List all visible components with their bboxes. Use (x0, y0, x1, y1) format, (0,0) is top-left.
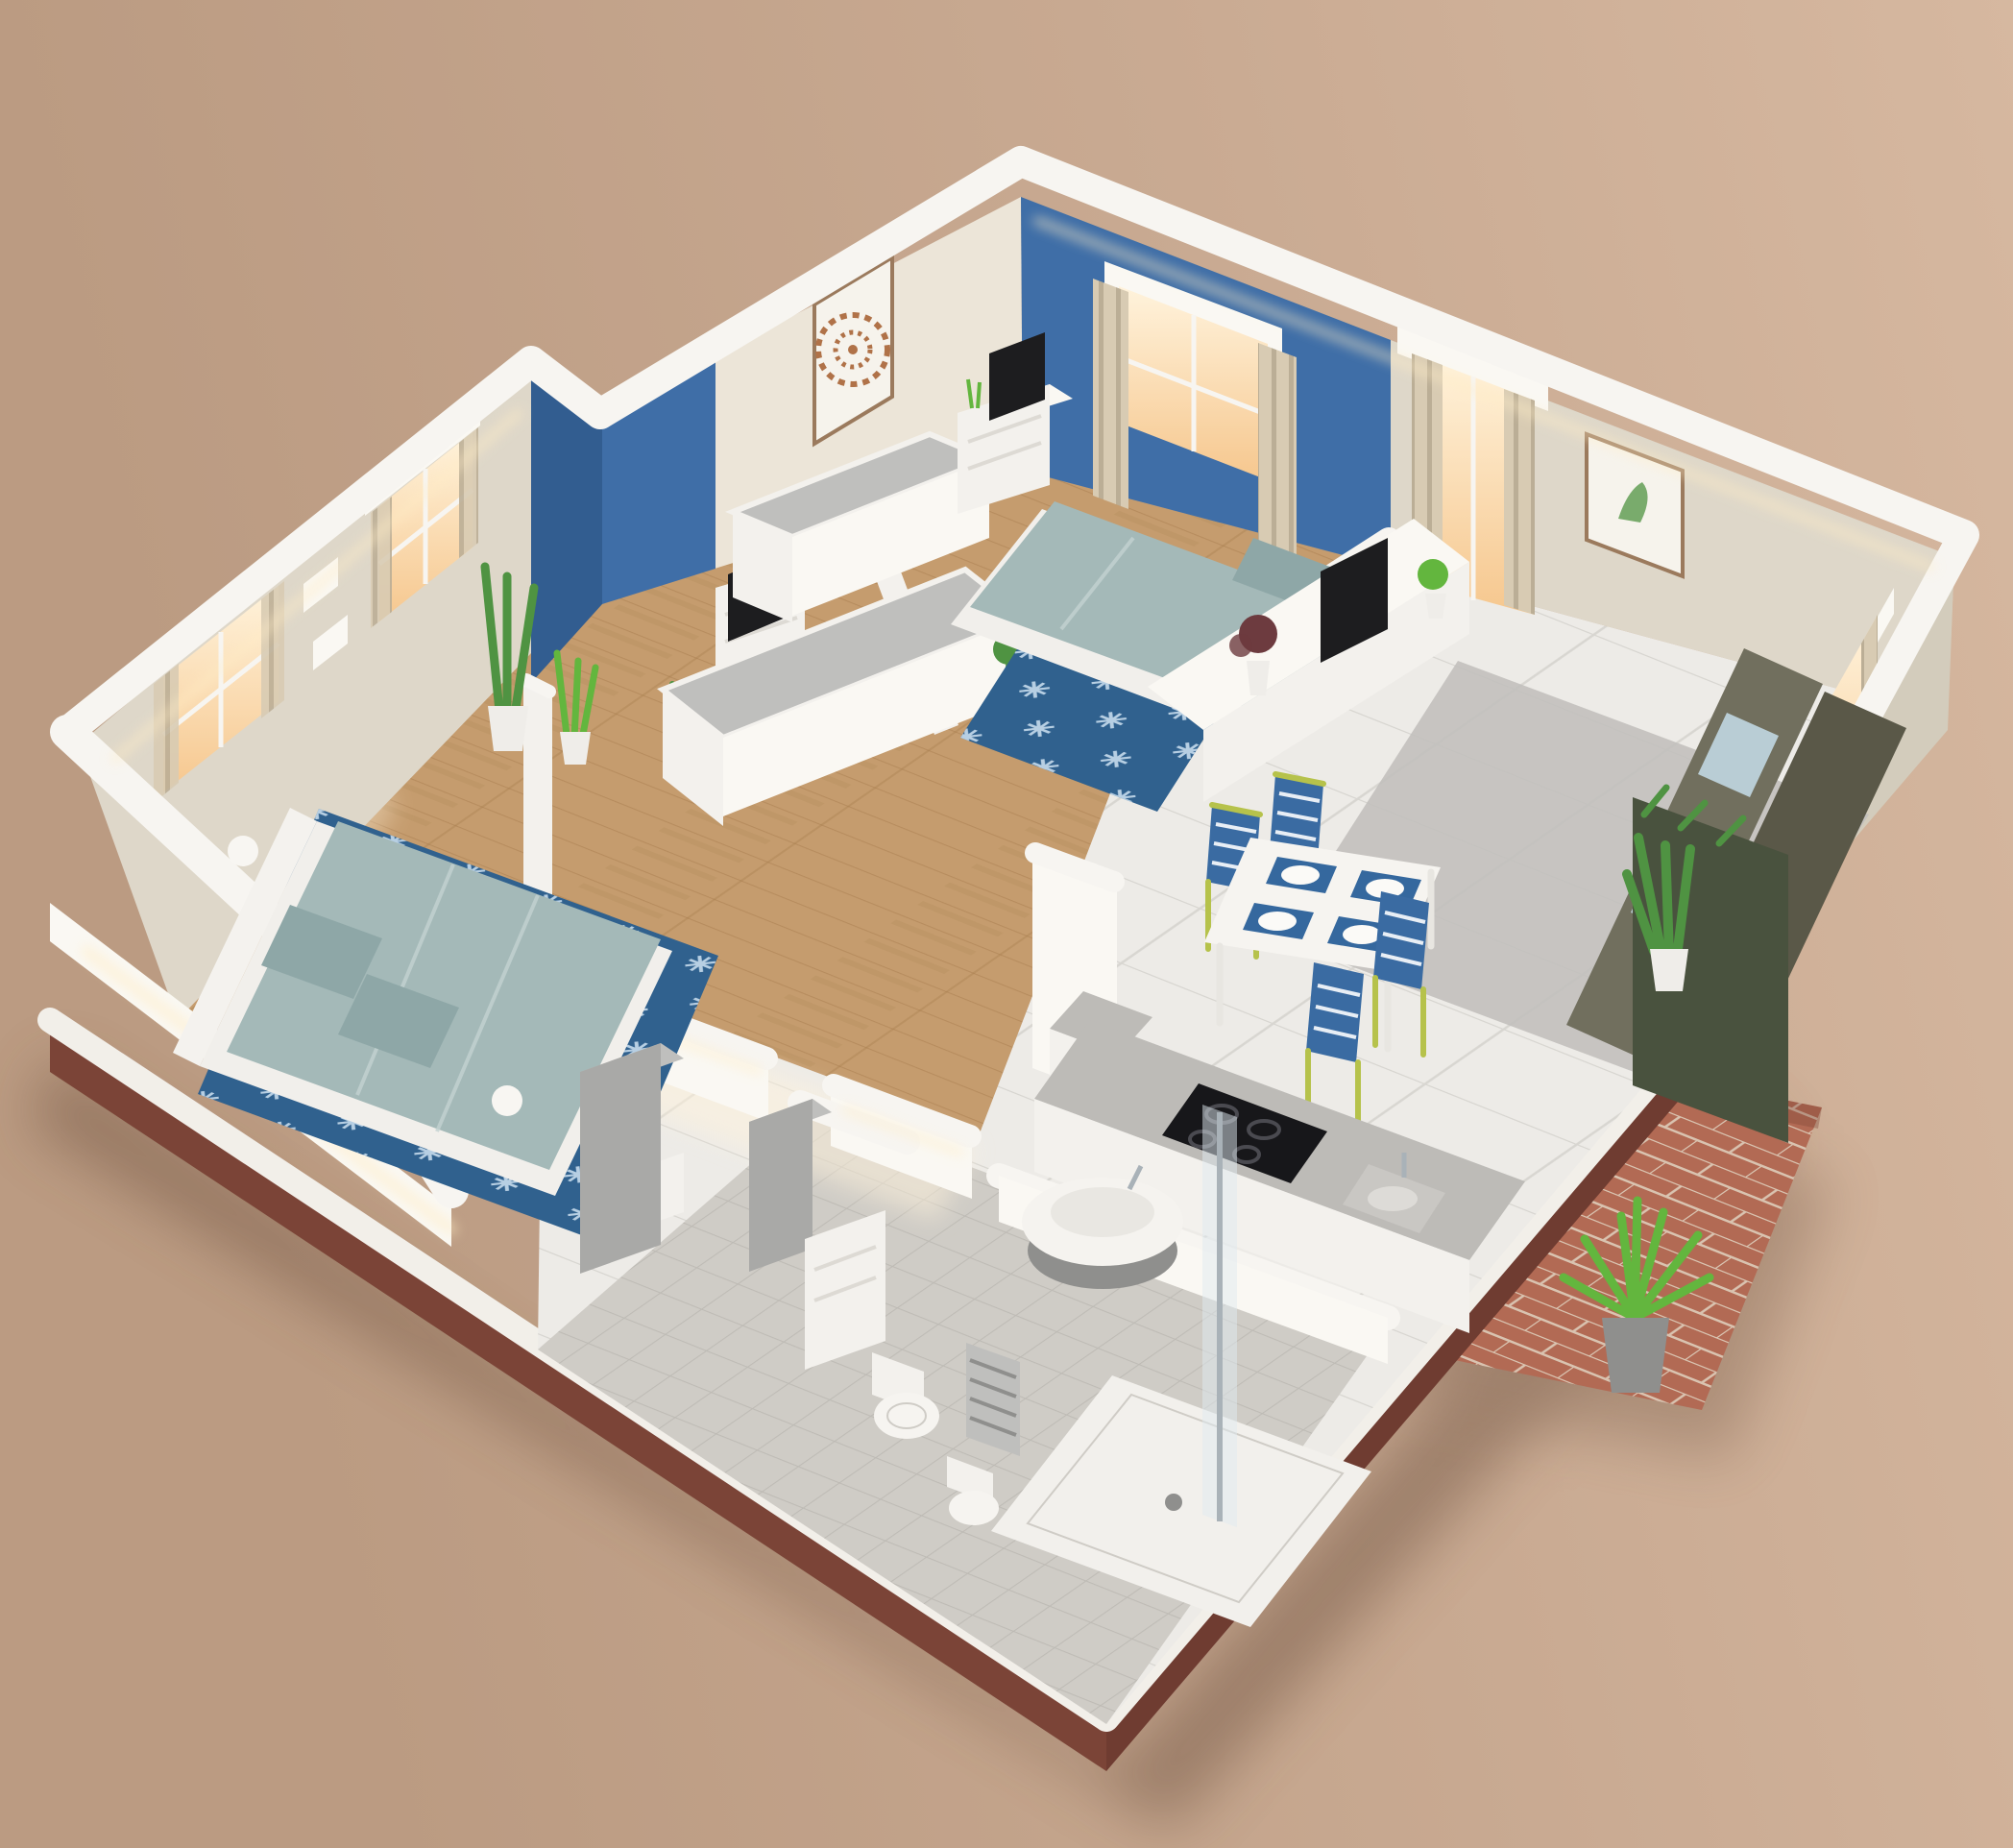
floor-plan-render (0, 0, 2013, 1848)
towel-radiator (966, 1343, 1020, 1456)
ball-lamp-2 (492, 1085, 522, 1116)
ball-lamp-1 (228, 836, 258, 866)
floor-plan-screenshot (0, 0, 2013, 1848)
